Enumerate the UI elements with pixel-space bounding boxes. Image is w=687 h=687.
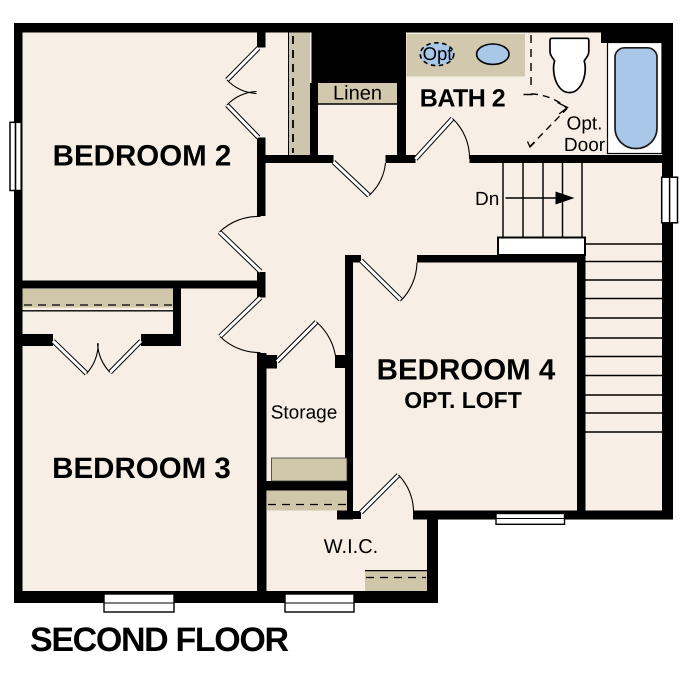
svg-text:BEDROOM 3: BEDROOM 3 xyxy=(52,452,231,485)
svg-text:Door: Door xyxy=(564,135,606,156)
svg-text:BEDROOM 4: BEDROOM 4 xyxy=(377,354,556,387)
svg-text:OPT. LOFT: OPT. LOFT xyxy=(404,387,522,413)
svg-text:W.I.C.: W.I.C. xyxy=(324,536,378,558)
svg-text:Dn: Dn xyxy=(475,189,499,210)
svg-text:Storage: Storage xyxy=(271,403,338,424)
svg-text:Opt: Opt xyxy=(423,43,453,64)
svg-text:BATH 2: BATH 2 xyxy=(420,85,505,113)
svg-text:SECOND FLOOR: SECOND FLOOR xyxy=(30,621,288,659)
svg-text:Linen: Linen xyxy=(333,83,382,105)
svg-text:Opt.: Opt. xyxy=(567,114,603,135)
svg-text:BEDROOM 2: BEDROOM 2 xyxy=(53,140,232,173)
